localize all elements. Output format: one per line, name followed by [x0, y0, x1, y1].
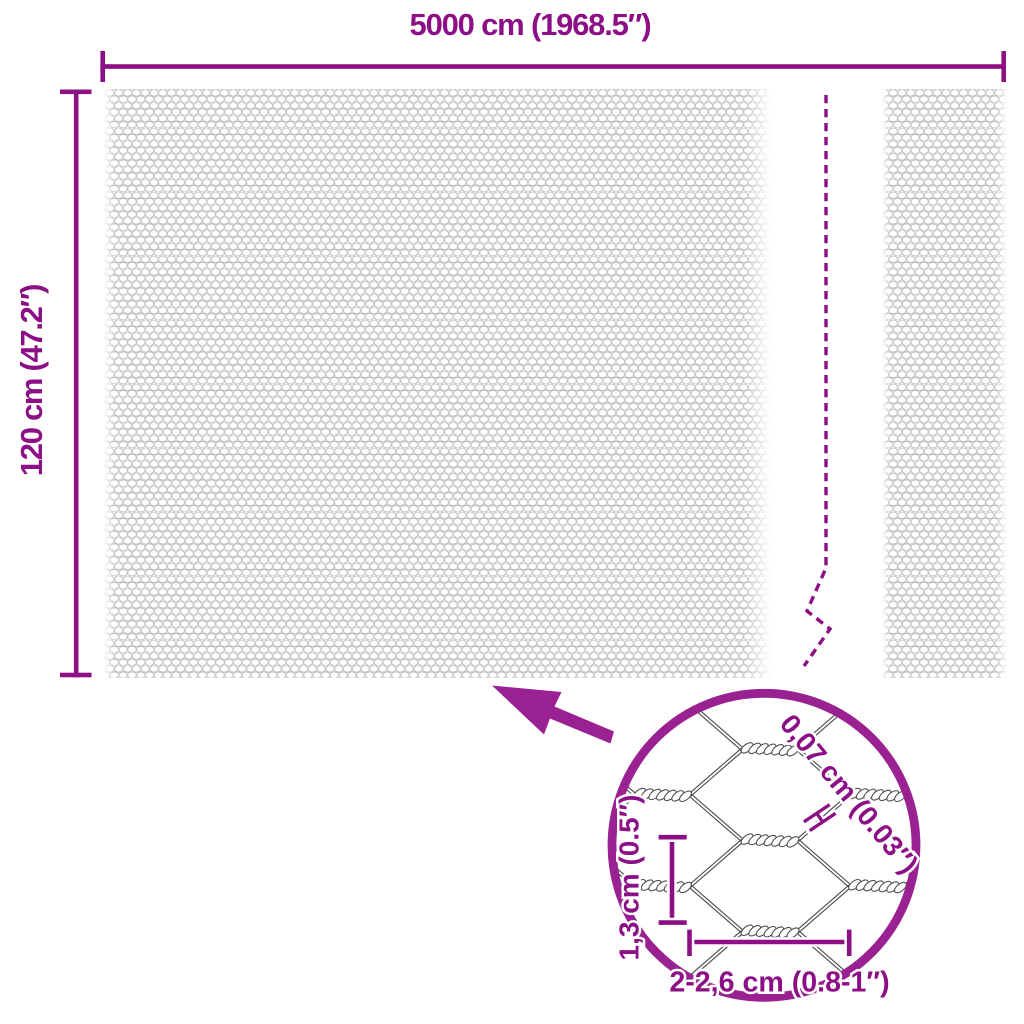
svg-text:5000 cm (1968.5″): 5000 cm (1968.5″) — [410, 7, 651, 42]
svg-text:120 cm (47.2″): 120 cm (47.2″) — [14, 285, 49, 476]
svg-text:2-2,6 cm (0.8-1″): 2-2,6 cm (0.8-1″) — [669, 967, 889, 999]
svg-text:1,3 cm (0.5″): 1,3 cm (0.5″) — [614, 795, 645, 961]
